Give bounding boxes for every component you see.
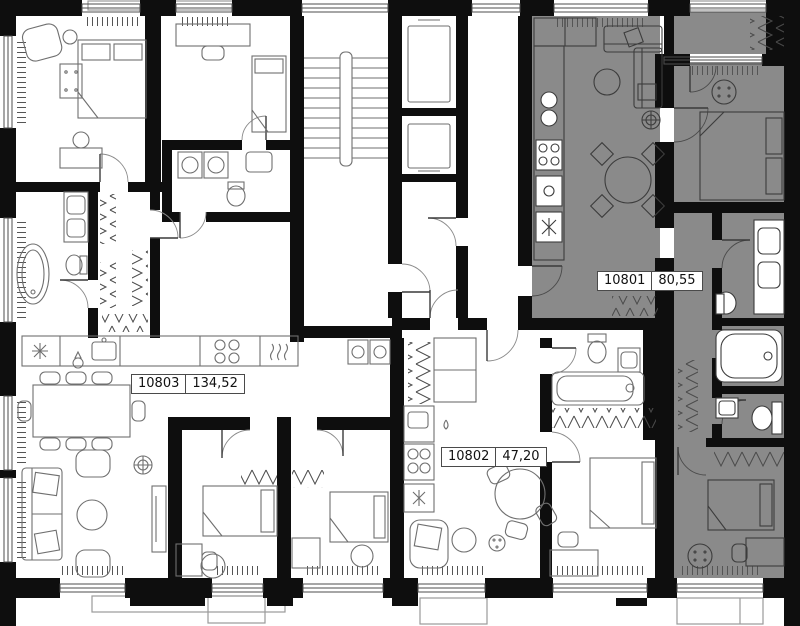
floorplan: 10801 80,55 10803 134,52 10802 47,20 [0, 0, 800, 626]
hob-icon [215, 340, 225, 350]
vanity-desk-symbol [60, 132, 102, 168]
oven-icon [271, 344, 288, 360]
wardrobe-symbol [241, 468, 277, 486]
hob-icon [536, 140, 562, 170]
toilet-symbol [66, 255, 87, 275]
desk-symbol [292, 538, 320, 568]
wardrobe-symbol [100, 262, 116, 308]
sink-icon [92, 342, 116, 360]
unit-label-10801[interactable]: 10801 80,55 [597, 271, 703, 291]
wardrobe-symbol [678, 360, 698, 432]
toilet-symbol [588, 334, 606, 363]
coffee-table-symbol [77, 500, 107, 530]
shoe-rack-symbol [102, 314, 148, 332]
armchair-symbol [20, 22, 63, 63]
toilet-symbol [227, 182, 245, 206]
wardrobe-symbol [552, 408, 656, 428]
sink-symbol [716, 398, 738, 418]
single-bed-symbol [330, 492, 388, 542]
elevator-car [408, 124, 450, 168]
hob-symbol [404, 444, 434, 480]
dishwasher-icon [444, 420, 448, 429]
column-symbol [134, 456, 152, 474]
dining-table-symbol [18, 372, 145, 450]
elevators [408, 20, 450, 171]
washer-symbol [370, 340, 390, 364]
sink-symbol [246, 152, 272, 172]
double-bed-symbol [590, 458, 656, 528]
sink-unit-symbol [404, 406, 448, 442]
elevator-car [408, 26, 450, 102]
pouf-symbol [452, 528, 476, 552]
desk-symbol [176, 544, 217, 576]
fridge-icon [32, 343, 48, 359]
desk-symbol [176, 24, 250, 60]
column-symbol [642, 111, 660, 129]
staircase [304, 52, 388, 166]
unit-number: 10801 [598, 272, 651, 290]
armchair-symbol [76, 450, 110, 477]
pouf-symbol [351, 545, 373, 567]
tv-stand-symbol [152, 486, 166, 552]
wardrobe-symbol [408, 342, 432, 404]
unit-label-10802[interactable]: 10802 47,20 [441, 447, 547, 467]
sink-icon [541, 92, 557, 108]
single-bed-symbol [252, 56, 286, 132]
unit-area: 134,52 [185, 375, 244, 393]
bathtub-symbol [716, 330, 782, 382]
unit-area: 47,20 [495, 448, 545, 466]
unit-label-10803[interactable]: 10803 134,52 [131, 374, 245, 394]
shoe-rack-symbol [612, 296, 658, 316]
bathtub-symbol [17, 244, 49, 304]
double-bed-symbol [78, 40, 146, 118]
sofa-symbol [22, 468, 62, 560]
fridge-symbol [404, 484, 434, 512]
sink-symbol [618, 348, 640, 372]
unit-area: 80,55 [651, 272, 701, 290]
oven-icon [536, 176, 562, 206]
balcony-bench-symbol [750, 16, 784, 50]
unit-10803-furniture [17, 22, 390, 578]
toilet-symbol [716, 292, 736, 314]
floorplan-drawing [0, 0, 800, 626]
bathtub-symbol [552, 372, 644, 405]
wardrobe-symbol [100, 194, 116, 244]
washer-symbol [178, 152, 202, 178]
kitchen-counter-symbol [22, 336, 298, 368]
side-table-symbol [63, 30, 77, 44]
unit-number: 10803 [132, 375, 185, 393]
double-sink-symbol [64, 192, 88, 242]
vanity-symbol [754, 220, 784, 314]
kitchen-cabinet-symbol [434, 338, 476, 402]
wardrobe-symbol [292, 470, 324, 488]
unit-number: 10802 [442, 448, 495, 466]
double-bed-symbol [203, 486, 277, 536]
wardrobe-symbol [132, 250, 148, 306]
washer-symbol [348, 340, 368, 364]
wardrobe-symbol [714, 450, 784, 468]
armchair-symbol [410, 520, 448, 568]
pouf-symbol [489, 535, 505, 551]
washer-symbol [204, 152, 228, 178]
